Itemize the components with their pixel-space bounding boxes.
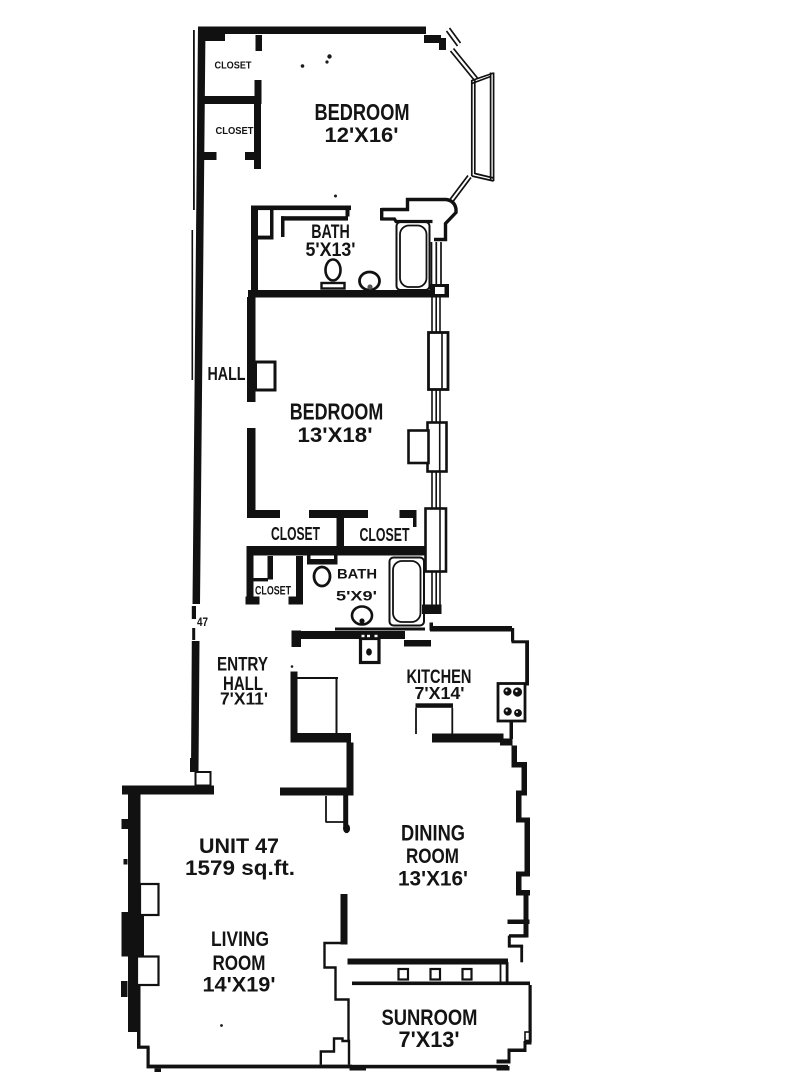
svg-text:13'X18': 13'X18' [298,424,373,447]
svg-text:7'X11': 7'X11' [220,689,268,709]
svg-text:14'X19': 14'X19' [203,974,276,997]
svg-text:HALL: HALL [208,364,246,384]
svg-text:5'X9': 5'X9' [336,588,377,604]
svg-text:DINING: DINING [401,821,465,846]
svg-text:CLOSET: CLOSET [271,523,320,544]
svg-text:7'X13': 7'X13' [399,1027,460,1052]
svg-text:CLOSET: CLOSET [215,61,252,72]
svg-text:1579 sq.ft.: 1579 sq.ft. [185,857,295,880]
svg-text:LIVING: LIVING [211,928,269,951]
svg-text:BATH: BATH [337,566,377,582]
svg-text:BEDROOM: BEDROOM [315,99,410,125]
svg-text:CLOSET: CLOSET [255,584,291,598]
svg-text:13'X16': 13'X16' [398,868,468,891]
svg-text:BEDROOM: BEDROOM [290,399,384,425]
svg-text:UNIT 47: UNIT 47 [199,835,279,858]
svg-text:CLOSET: CLOSET [360,524,410,545]
svg-text:47: 47 [197,615,208,629]
svg-text:7'X14': 7'X14' [415,683,465,703]
svg-text:ROOM: ROOM [213,952,266,975]
svg-text:CLOSET: CLOSET [216,126,254,137]
svg-text:12'X16': 12'X16' [325,124,399,147]
svg-text:ENTRY: ENTRY [217,654,268,676]
svg-text:ROOM: ROOM [406,845,459,868]
svg-text:5'X13': 5'X13' [306,240,356,261]
